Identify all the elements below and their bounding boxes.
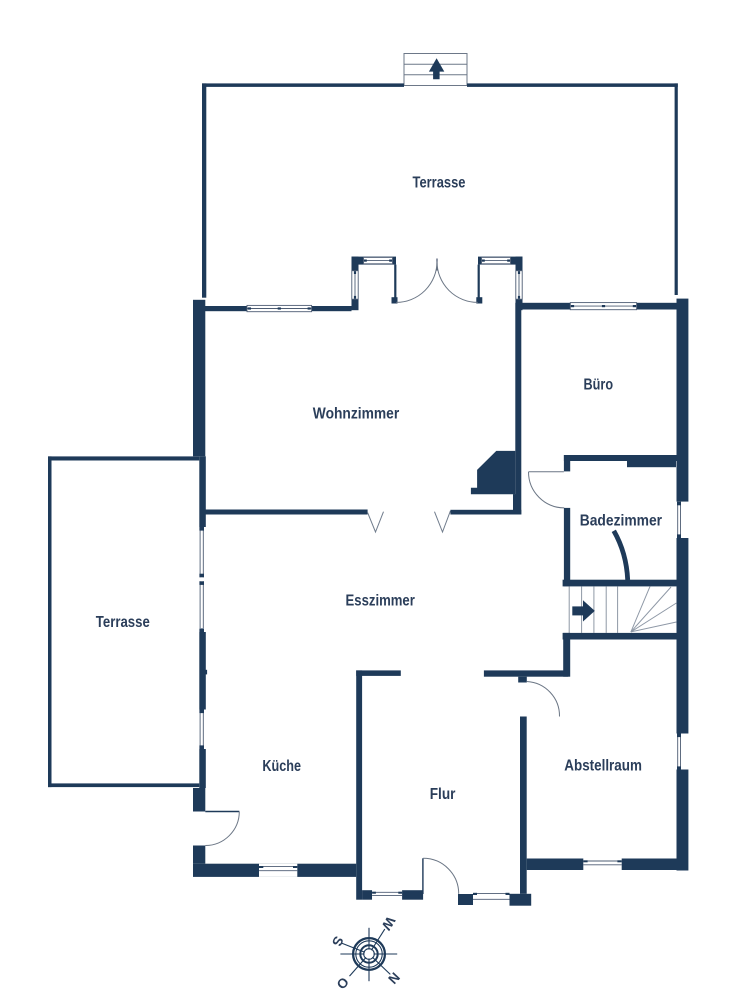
svg-text:Büro: Büro (584, 376, 614, 393)
svg-text:Flur: Flur (430, 786, 456, 803)
svg-text:Esszimmer: Esszimmer (346, 593, 415, 610)
svg-text:Terrasse: Terrasse (96, 614, 150, 631)
svg-text:Abstellraum: Abstellraum (564, 758, 642, 775)
svg-text:Wohnzimmer: Wohnzimmer (313, 406, 399, 423)
svg-text:Terrasse: Terrasse (413, 174, 466, 191)
svg-text:Küche: Küche (262, 758, 301, 775)
svg-text:Badezimmer: Badezimmer (580, 513, 662, 530)
